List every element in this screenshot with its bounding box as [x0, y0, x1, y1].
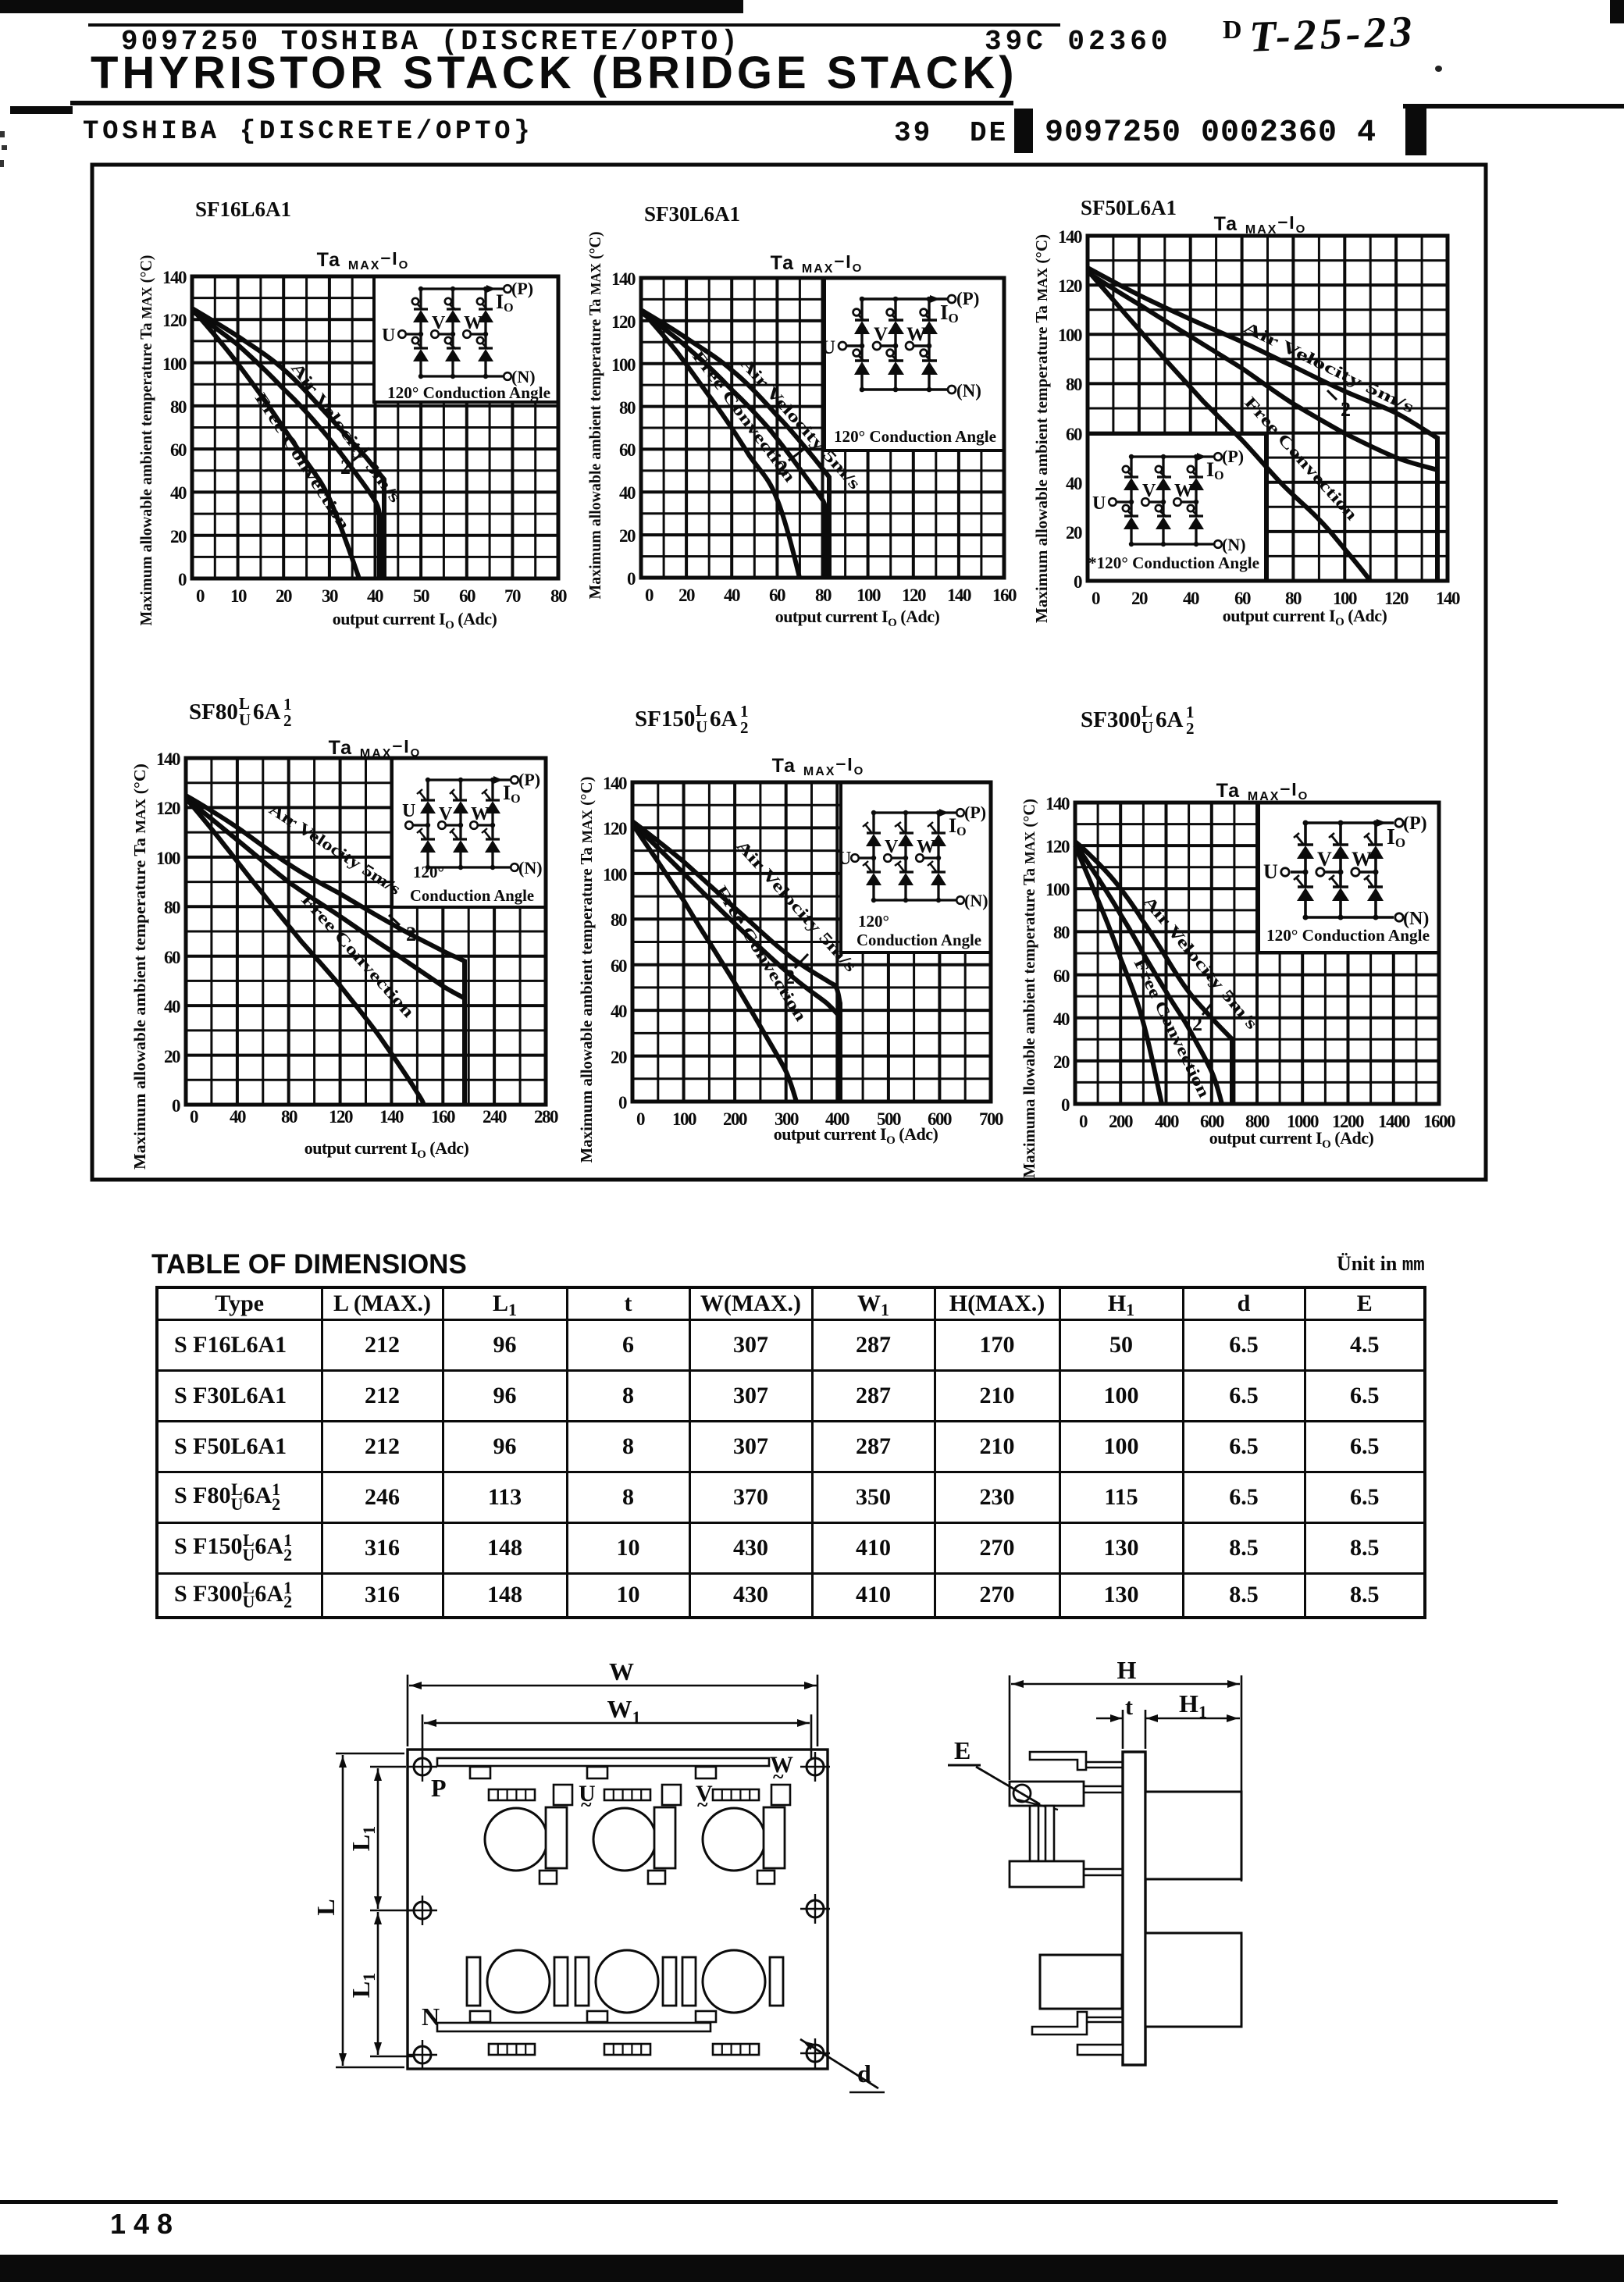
svg-text:30: 30: [322, 586, 338, 606]
svg-text:2: 2: [1192, 1013, 1202, 1035]
svg-text:140: 140: [162, 268, 187, 287]
svg-text:80: 80: [1066, 375, 1082, 394]
svg-text:20: 20: [1053, 1052, 1070, 1072]
svg-text:120°: 120°: [413, 863, 444, 881]
svg-text:120°: 120°: [858, 912, 889, 931]
svg-text:0: 0: [196, 586, 205, 606]
svg-text:140: 140: [156, 749, 180, 769]
svg-text:140: 140: [1045, 794, 1070, 813]
svg-text:(P): (P): [518, 770, 540, 789]
svg-text:Maximum allowable ambient temp: Maximum allowable ambient temperature Ta…: [130, 764, 149, 1169]
svg-text:output current IO (Adc): output current IO (Adc): [774, 1124, 938, 1147]
svg-text:40: 40: [164, 997, 180, 1016]
svg-text:120: 120: [329, 1107, 353, 1127]
svg-text:2: 2: [406, 923, 416, 945]
svg-text:2: 2: [340, 456, 351, 479]
svg-text:U: U: [1141, 718, 1153, 737]
svg-text:output current IO (Adc): output current IO (Adc): [775, 607, 940, 629]
svg-text:700: 700: [979, 1109, 1003, 1129]
svg-text:100: 100: [1058, 326, 1082, 345]
svg-text:0: 0: [178, 570, 187, 589]
svg-text:2: 2: [1341, 398, 1351, 421]
svg-text:d: d: [857, 2059, 871, 2088]
svg-text:120: 120: [603, 819, 627, 838]
svg-text:20: 20: [619, 526, 636, 546]
svg-text:SF300: SF300: [1081, 707, 1141, 732]
svg-text:100: 100: [156, 849, 180, 868]
svg-text:120: 120: [1045, 837, 1070, 856]
svg-text:40: 40: [724, 586, 740, 605]
svg-text:80: 80: [1053, 923, 1070, 942]
svg-text:100: 100: [611, 355, 636, 375]
svg-text:400: 400: [1155, 1112, 1179, 1131]
svg-text:120° Conduction Angle: 120° Conduction Angle: [834, 427, 996, 446]
svg-text:80: 80: [611, 910, 627, 930]
svg-text:~: ~: [581, 1793, 592, 1816]
svg-text:2: 2: [785, 966, 795, 988]
svg-text:SF150: SF150: [635, 707, 695, 732]
svg-text:SF30L6A1: SF30L6A1: [644, 202, 740, 226]
svg-text:60: 60: [1053, 967, 1070, 986]
svg-text:0: 0: [1061, 1095, 1070, 1115]
svg-text:V: V: [432, 313, 446, 333]
svg-text:0: 0: [618, 1093, 627, 1113]
svg-text:SF80: SF80: [189, 700, 238, 724]
svg-text:L1: L1: [347, 1973, 379, 1998]
svg-text:60: 60: [619, 440, 636, 460]
svg-text:Air Velocity 5m/s: Air Velocity 5m/s: [265, 799, 404, 899]
svg-text:(P): (P): [964, 803, 986, 822]
svg-text:(N): (N): [956, 381, 981, 401]
svg-text:output current IO (Adc): output current IO (Adc): [304, 1138, 469, 1161]
svg-text:40: 40: [367, 586, 383, 606]
svg-text:100: 100: [162, 354, 187, 374]
svg-text:2: 2: [740, 718, 749, 737]
svg-text:240: 240: [483, 1107, 507, 1127]
svg-text:W: W: [471, 804, 490, 824]
svg-text:SF16L6A1: SF16L6A1: [195, 198, 291, 221]
svg-text:10: 10: [230, 586, 247, 606]
svg-text:(P): (P): [1403, 813, 1427, 834]
svg-text:20: 20: [170, 527, 187, 546]
svg-text:20: 20: [276, 586, 292, 606]
svg-text:W: W: [917, 837, 935, 857]
svg-text:20: 20: [611, 1048, 627, 1067]
svg-text:V: V: [1142, 481, 1156, 501]
svg-text:60: 60: [769, 586, 785, 605]
svg-text:W: W: [906, 324, 926, 345]
svg-text:Ta MAX–IO: Ta MAX–IO: [772, 753, 865, 778]
svg-text:Conduction Angle: Conduction Angle: [857, 931, 981, 949]
svg-text:Conduction Angle: Conduction Angle: [410, 886, 534, 905]
svg-text:Maximum allowable ambient temp: Maximum allowable ambient temperature Ta…: [1032, 234, 1051, 623]
svg-text:70: 70: [504, 586, 521, 606]
svg-text:SF50L6A1: SF50L6A1: [1081, 196, 1177, 219]
svg-text:W: W: [464, 313, 483, 333]
svg-text:0: 0: [627, 569, 636, 589]
svg-text:80: 80: [550, 586, 567, 606]
svg-text:U: U: [402, 801, 415, 821]
svg-text:280: 280: [534, 1107, 558, 1127]
svg-text:2: 2: [778, 457, 788, 479]
svg-text:6A: 6A: [710, 707, 738, 732]
svg-text:0: 0: [190, 1107, 198, 1127]
svg-text:L: L: [312, 1899, 340, 1915]
svg-text:0: 0: [172, 1096, 180, 1116]
svg-text:U: U: [696, 717, 707, 736]
svg-text:120: 120: [156, 799, 180, 818]
svg-text:(P): (P): [511, 279, 533, 298]
svg-text:Ta MAX–IO: Ta MAX–IO: [1216, 778, 1309, 803]
svg-text:0: 0: [1079, 1112, 1088, 1131]
svg-text:120: 120: [1384, 589, 1409, 608]
svg-text:60: 60: [459, 586, 475, 606]
svg-text:100: 100: [1045, 880, 1070, 899]
svg-text:120° Conduction Angle: 120° Conduction Angle: [1266, 926, 1430, 945]
svg-text:L1: L1: [347, 1826, 379, 1851]
svg-text:0: 0: [645, 586, 654, 605]
svg-text:80: 80: [281, 1107, 297, 1127]
svg-text:6A: 6A: [253, 700, 281, 724]
svg-text:Maximuma llowable ambient temp: Maximuma llowable ambient temperature Ta…: [1020, 799, 1038, 1178]
svg-text:2: 2: [283, 711, 292, 730]
svg-text:100: 100: [603, 865, 627, 885]
svg-text:U: U: [382, 326, 395, 346]
svg-text:U: U: [821, 337, 835, 358]
svg-text:U: U: [838, 849, 851, 869]
svg-text:140: 140: [947, 586, 971, 605]
svg-text:100: 100: [857, 586, 881, 605]
svg-text:60: 60: [1066, 425, 1082, 444]
svg-text:140: 140: [1436, 589, 1460, 608]
svg-text:W: W: [1352, 848, 1372, 870]
svg-text:40: 40: [230, 1107, 246, 1127]
svg-text:t: t: [1125, 1694, 1133, 1720]
svg-text:120: 120: [902, 586, 926, 605]
svg-text:0: 0: [636, 1109, 645, 1129]
svg-text:50: 50: [413, 586, 429, 606]
svg-text:V: V: [1317, 848, 1332, 870]
svg-text:Maximum allowable ambient temp: Maximum allowable ambient temperature Ta…: [137, 255, 155, 626]
svg-text:100: 100: [672, 1109, 696, 1129]
svg-text:120: 120: [162, 311, 187, 330]
svg-text:20: 20: [1066, 523, 1082, 543]
svg-text:H: H: [1117, 1656, 1137, 1684]
svg-text:E: E: [954, 1736, 970, 1764]
svg-text:output current IO (Adc): output current IO (Adc): [333, 609, 497, 632]
svg-text:(P): (P): [956, 289, 979, 308]
svg-text:W1: W1: [607, 1695, 641, 1727]
svg-text:(N): (N): [964, 891, 988, 910]
svg-text:80: 80: [815, 586, 832, 605]
svg-text:Ta MAX–IO: Ta MAX–IO: [317, 247, 410, 272]
svg-text:60: 60: [611, 956, 627, 976]
svg-text:H1: H1: [1179, 1689, 1207, 1721]
svg-text:200: 200: [723, 1109, 747, 1129]
svg-text:120° Conduction Angle: 120° Conduction Angle: [387, 383, 550, 402]
svg-text:U: U: [1092, 493, 1106, 514]
svg-text:P: P: [431, 1774, 447, 1802]
svg-text:W: W: [609, 1657, 634, 1686]
svg-text:140: 140: [1058, 227, 1082, 247]
svg-text:2: 2: [1186, 719, 1195, 738]
svg-text:Maximum allowable ambient temp: Maximum allowable ambient temperature Ta…: [577, 777, 596, 1163]
svg-text:80: 80: [170, 397, 187, 417]
svg-text:W: W: [1174, 481, 1193, 501]
svg-text:40: 40: [1066, 474, 1082, 493]
svg-text:80: 80: [619, 398, 636, 418]
svg-text:0: 0: [1092, 589, 1100, 608]
svg-text:60: 60: [164, 948, 180, 967]
svg-text:40: 40: [1053, 1009, 1070, 1029]
svg-text:80: 80: [164, 898, 180, 917]
svg-text:U: U: [239, 710, 251, 729]
svg-text:200: 200: [1109, 1112, 1133, 1131]
svg-text:V: V: [874, 324, 888, 345]
svg-text:*120° Conduction Angle: *120° Conduction Angle: [1088, 554, 1259, 572]
svg-text:160: 160: [992, 586, 1017, 605]
svg-text:6A: 6A: [1156, 707, 1184, 732]
svg-text:40: 40: [611, 1002, 627, 1021]
svg-text:(N): (N): [518, 858, 543, 878]
svg-text:1600: 1600: [1423, 1112, 1455, 1131]
svg-text:V: V: [885, 837, 899, 857]
svg-text:output current IO (Adc): output current IO (Adc): [1209, 1128, 1374, 1151]
svg-text:140: 140: [379, 1107, 404, 1127]
svg-text:20: 20: [1131, 589, 1148, 608]
svg-text:60: 60: [170, 440, 187, 460]
svg-text:40: 40: [1183, 589, 1199, 608]
svg-text:Maximum allowable ambient temp: Maximum allowable ambient temperature Ta…: [586, 232, 604, 600]
svg-text:120: 120: [611, 312, 636, 332]
svg-text:140: 140: [611, 269, 636, 289]
svg-text:(N): (N): [1222, 535, 1246, 554]
svg-text:V: V: [439, 804, 453, 824]
svg-text:(P): (P): [1222, 447, 1244, 466]
svg-text:40: 40: [170, 483, 187, 503]
svg-text:~: ~: [697, 1793, 708, 1816]
svg-text:1400: 1400: [1378, 1112, 1410, 1131]
svg-text:output current IO (Adc): output current IO (Adc): [1223, 606, 1387, 628]
svg-text:140: 140: [603, 774, 627, 793]
svg-text:20: 20: [678, 586, 695, 605]
svg-text:Ta MAX–IO: Ta MAX–IO: [771, 250, 864, 276]
svg-text:20: 20: [164, 1047, 180, 1066]
svg-text:160: 160: [431, 1107, 455, 1127]
svg-text:120: 120: [1058, 276, 1082, 296]
svg-text:40: 40: [619, 483, 636, 503]
svg-text:0: 0: [1074, 572, 1082, 592]
svg-text:Ta MAX–IO: Ta MAX–IO: [1214, 211, 1307, 237]
svg-text:U: U: [1263, 860, 1278, 883]
